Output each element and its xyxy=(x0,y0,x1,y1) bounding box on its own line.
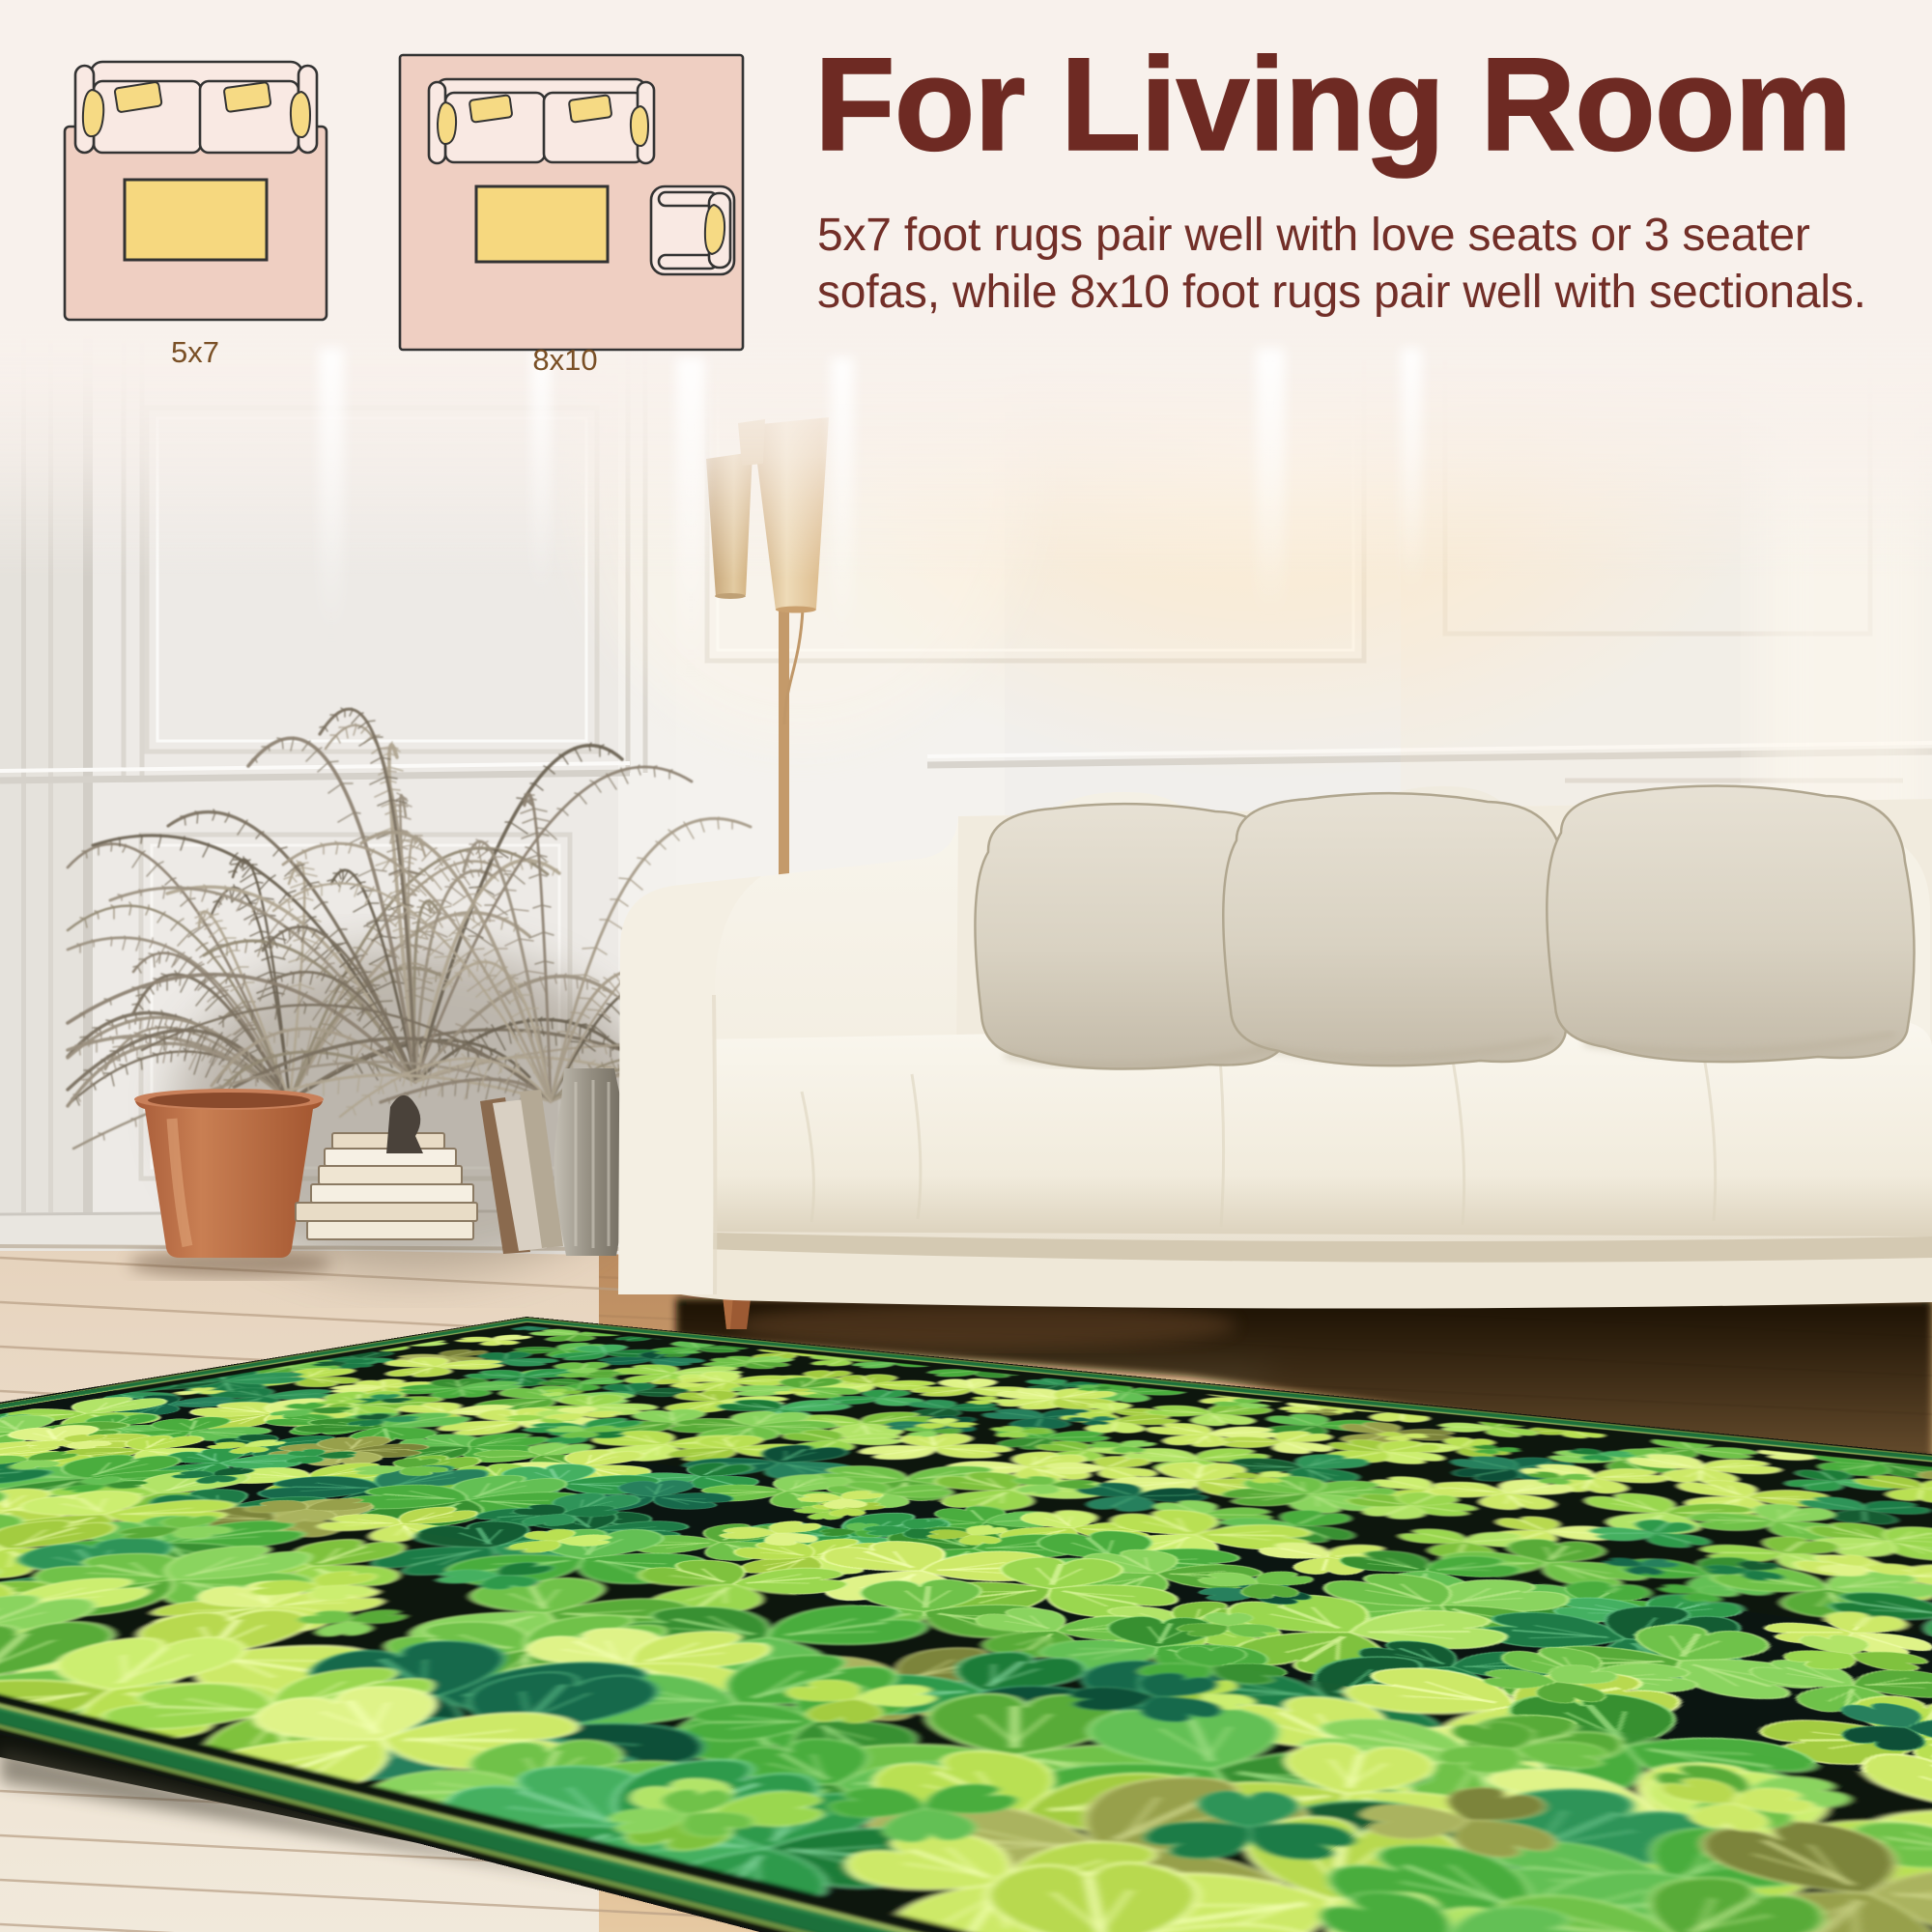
svg-text:5x7: 5x7 xyxy=(171,335,219,369)
svg-text:8x10: 8x10 xyxy=(532,343,597,377)
